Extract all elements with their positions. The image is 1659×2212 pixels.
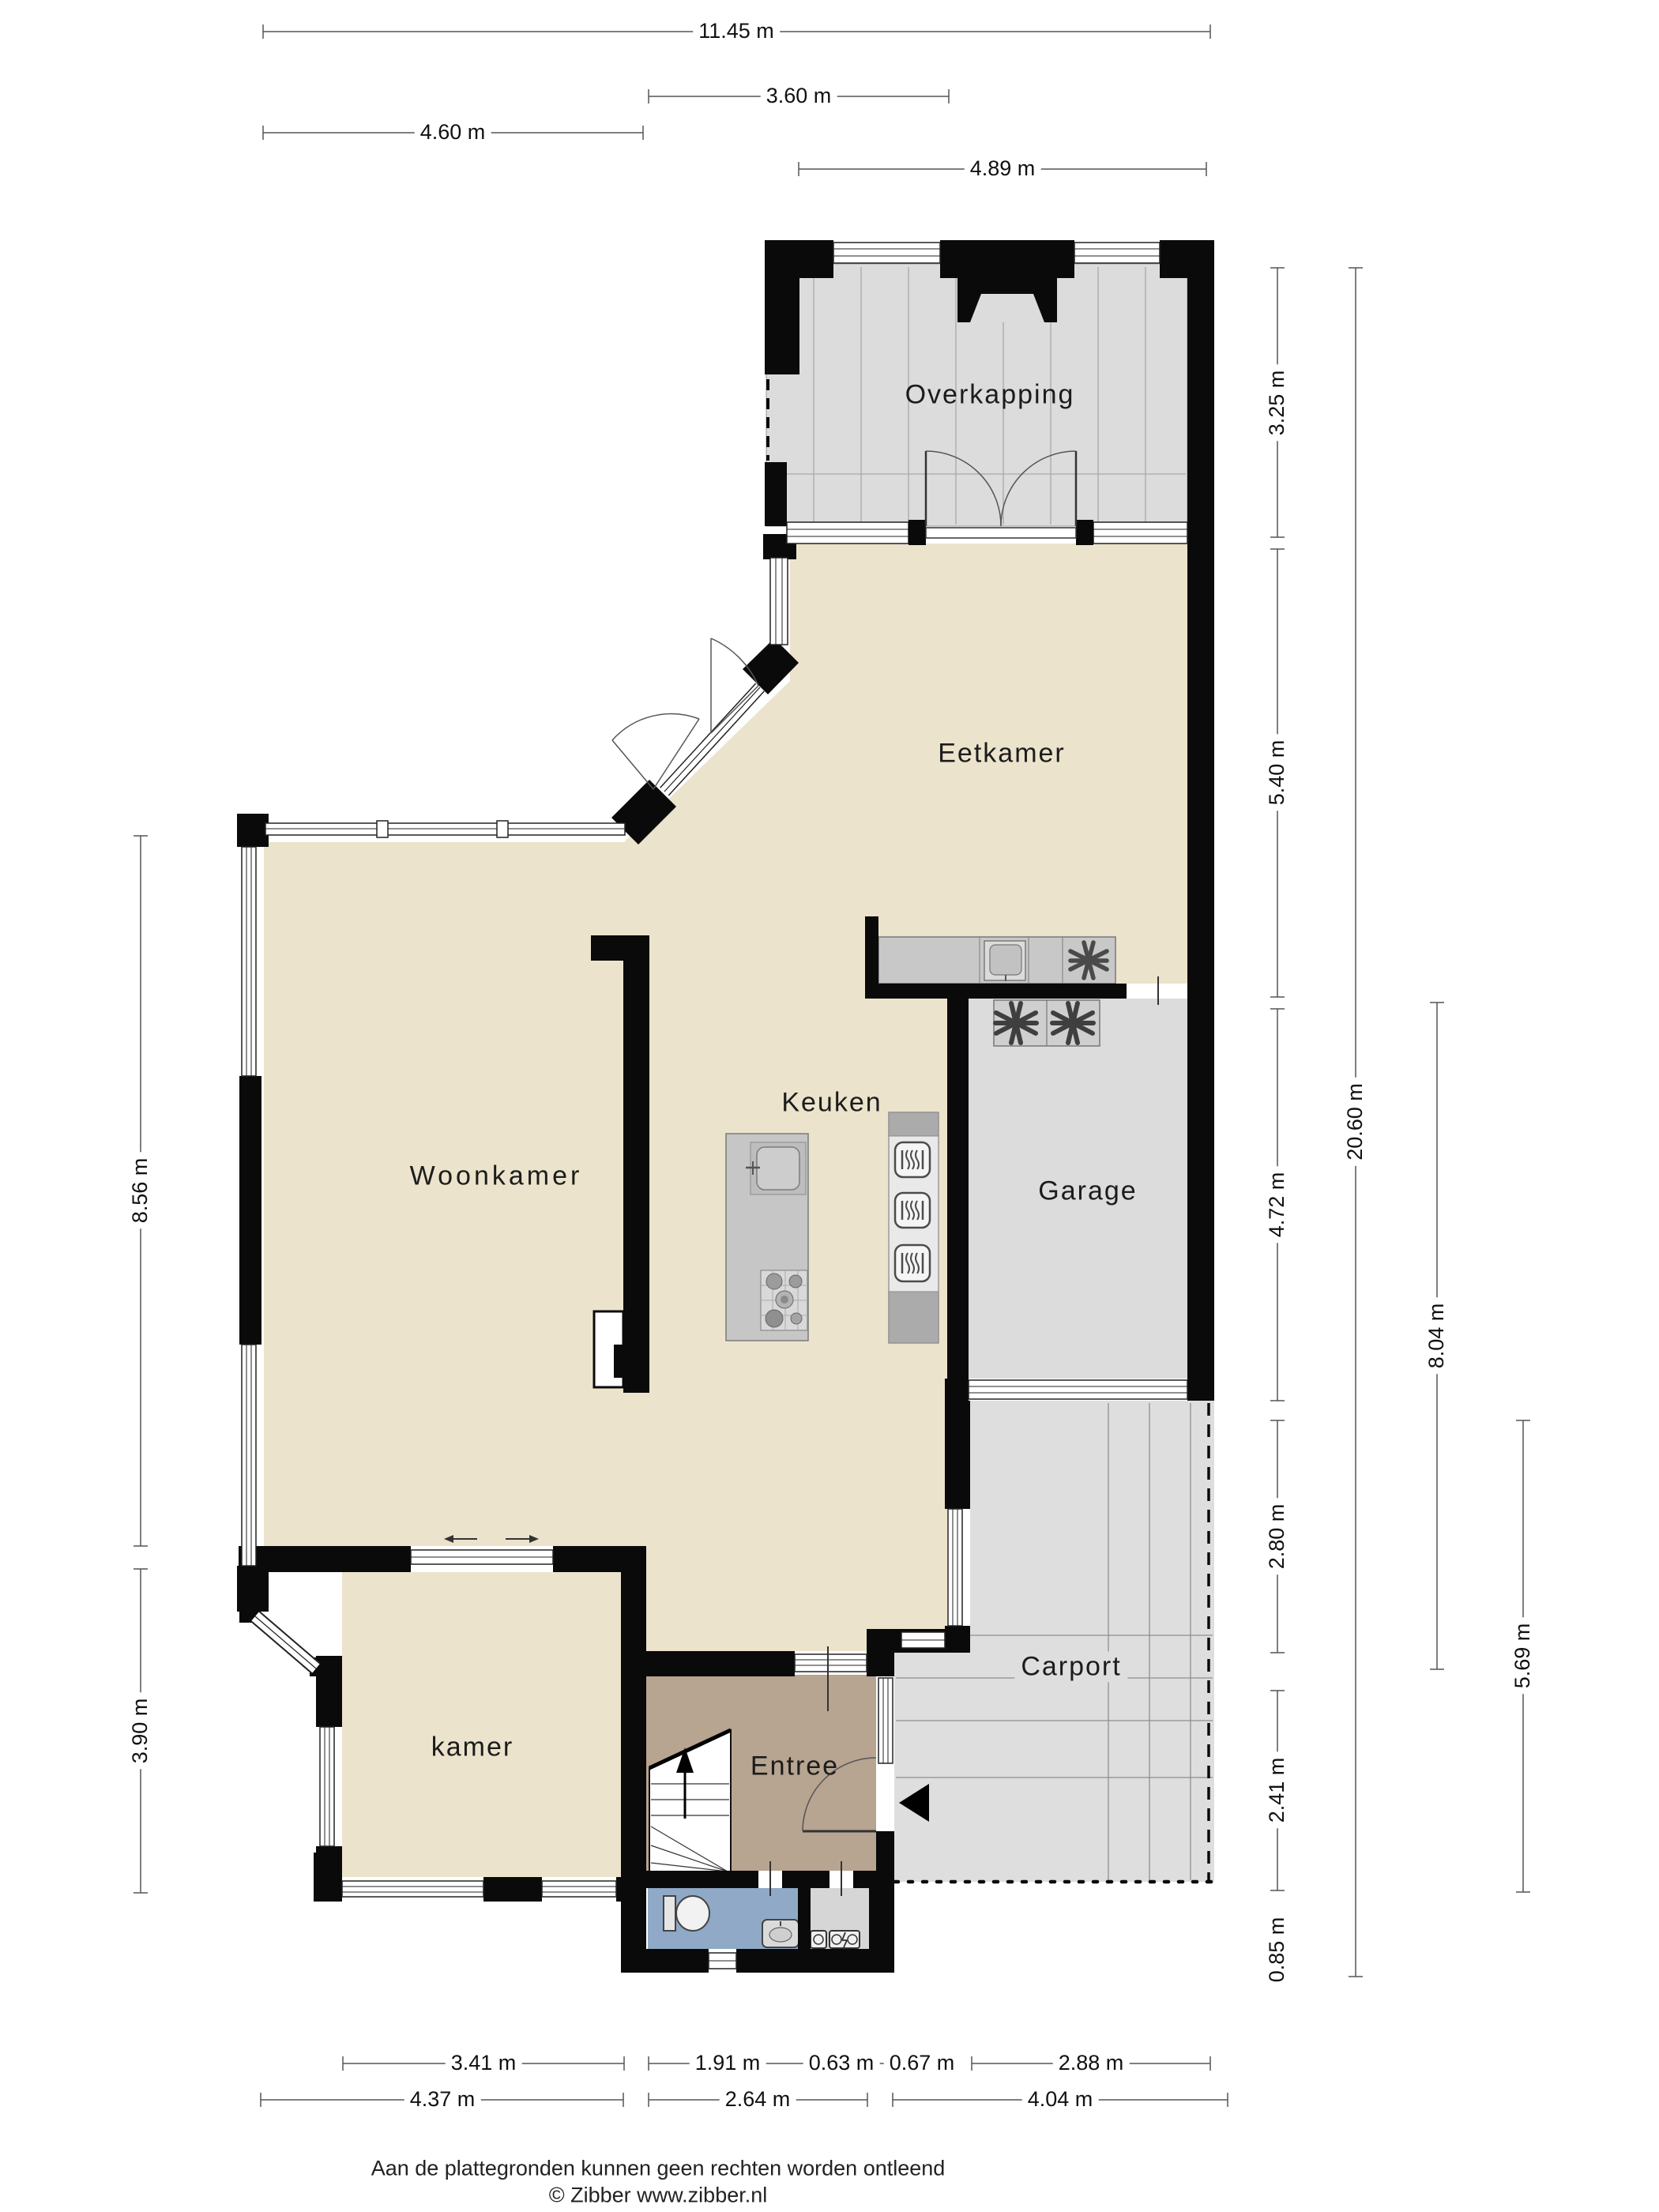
room-label-woonkamer: Woonkamer xyxy=(410,1161,583,1192)
dim-right-6: 0.85 m xyxy=(1266,1912,1289,1988)
island-sink-icon xyxy=(746,1142,806,1194)
room-label-kamer: kamer xyxy=(431,1732,513,1763)
floors xyxy=(264,264,1214,1949)
footer-disclaimer: Aan de plattegronden kunnen geen rechten… xyxy=(371,2157,946,2181)
kamer-floor xyxy=(342,1572,621,1877)
garage-left-wall xyxy=(947,999,969,1379)
window xyxy=(242,1345,256,1566)
window xyxy=(320,1727,334,1846)
dim-top-4: 4.89 m xyxy=(965,157,1041,181)
dim-left-1: 8.56 m xyxy=(129,1153,152,1229)
dim-bottom1-5: 2.88 m xyxy=(1053,2052,1130,2075)
garage-top-wall xyxy=(865,984,1127,999)
overkapping-chimney xyxy=(940,240,1074,322)
entree-top-wall xyxy=(646,1651,795,1676)
window xyxy=(787,522,908,544)
window xyxy=(265,821,625,837)
dim-bottom2-2: 2.64 m xyxy=(720,2088,796,2112)
dim-bottom1-2: 1.91 m xyxy=(690,2052,766,2075)
dim-right-total: 20.60 m xyxy=(1344,1078,1367,1166)
window xyxy=(1093,522,1187,544)
window xyxy=(342,1881,483,1897)
window xyxy=(901,1632,945,1648)
window xyxy=(242,847,256,1076)
window xyxy=(795,1654,867,1672)
door-mullion xyxy=(1076,520,1093,545)
room-label-garage: Garage xyxy=(1038,1176,1137,1207)
floorplan-page: Overkapping Eetkamer Woonkamer Keuken Ga… xyxy=(0,0,1659,2212)
right-outer-wall xyxy=(1187,240,1214,1401)
chimney-stub xyxy=(591,935,649,961)
dim-right-2: 5.40 m xyxy=(1266,735,1289,811)
left-wall-mid xyxy=(239,1076,261,1345)
room-label-entree: Entree xyxy=(750,1751,839,1782)
dim-right-4: 2.80 m xyxy=(1266,1499,1289,1575)
dim-right-3: 4.72 m xyxy=(1266,1167,1289,1243)
oven-icon-1 xyxy=(895,1142,930,1177)
window xyxy=(709,1953,736,1969)
dim-right-mid: 8.04 m xyxy=(1425,1298,1449,1375)
window xyxy=(770,558,788,645)
island-stove-icon xyxy=(761,1270,807,1330)
toilet-bowl-icon xyxy=(676,1896,709,1931)
door-threshold xyxy=(926,528,1076,538)
oven-icon-3 xyxy=(895,1245,930,1281)
dim-left-2: 3.90 m xyxy=(129,1693,152,1770)
room-label-carport: Carport xyxy=(1014,1652,1127,1683)
sliding-door xyxy=(411,1550,553,1564)
window xyxy=(833,243,940,263)
toilet-tank xyxy=(664,1896,675,1931)
dim-bottom1-4: 0.67 m xyxy=(884,2052,961,2075)
counter-sink-icon xyxy=(984,941,1025,981)
dim-bottom2-3: 4.04 m xyxy=(1022,2088,1099,2112)
meter-icons xyxy=(811,1931,860,1948)
dim-top-2: 3.60 m xyxy=(761,85,837,108)
kamer-entree-wall xyxy=(621,1546,646,1973)
oven-tower xyxy=(889,1112,939,1343)
garage-door-pillar-right xyxy=(1187,1379,1214,1401)
chimney-wall xyxy=(623,935,649,1393)
window xyxy=(948,1509,962,1626)
dim-right-outer: 5.69 m xyxy=(1511,1618,1535,1695)
dim-right-5: 2.41 m xyxy=(1266,1752,1289,1829)
woonkamer-corner-pillar xyxy=(237,814,269,847)
dim-bottom1-1: 3.41 m xyxy=(446,2052,522,2075)
terrace-door-2 xyxy=(612,714,699,789)
oven-icon-2 xyxy=(895,1193,930,1228)
entree-corner-pillar xyxy=(867,1629,894,1676)
dim-bottom1-3: 0.63 m xyxy=(803,2052,880,2075)
overkapping-left-lower-pillar xyxy=(765,462,787,526)
garage-door-pillar-left xyxy=(945,1379,969,1401)
kitchen-counter xyxy=(878,937,1115,984)
dim-top-total: 11.45 m xyxy=(693,20,780,43)
room-label-keuken: Keuken xyxy=(781,1088,882,1119)
window xyxy=(1074,243,1160,263)
garage-appliances xyxy=(994,1000,1100,1046)
garage-door xyxy=(969,1380,1187,1399)
room-label-eetkamer: Eetkamer xyxy=(938,739,1066,769)
kitchen-island xyxy=(726,1134,808,1341)
dim-top-3: 4.60 m xyxy=(415,121,491,145)
dim-right-1: 3.25 m xyxy=(1266,365,1289,442)
toilet-sink-icon xyxy=(762,1920,799,1947)
footer-copyright: © Zibber www.zibber.nl xyxy=(549,2184,768,2208)
room-label-overkapping: Overkapping xyxy=(905,380,1075,411)
window xyxy=(542,1881,616,1897)
door-mullion xyxy=(908,520,926,545)
diagonal-window xyxy=(255,1616,316,1668)
dim-bottom2-1: 4.37 m xyxy=(404,2088,481,2112)
window xyxy=(878,1678,893,1763)
